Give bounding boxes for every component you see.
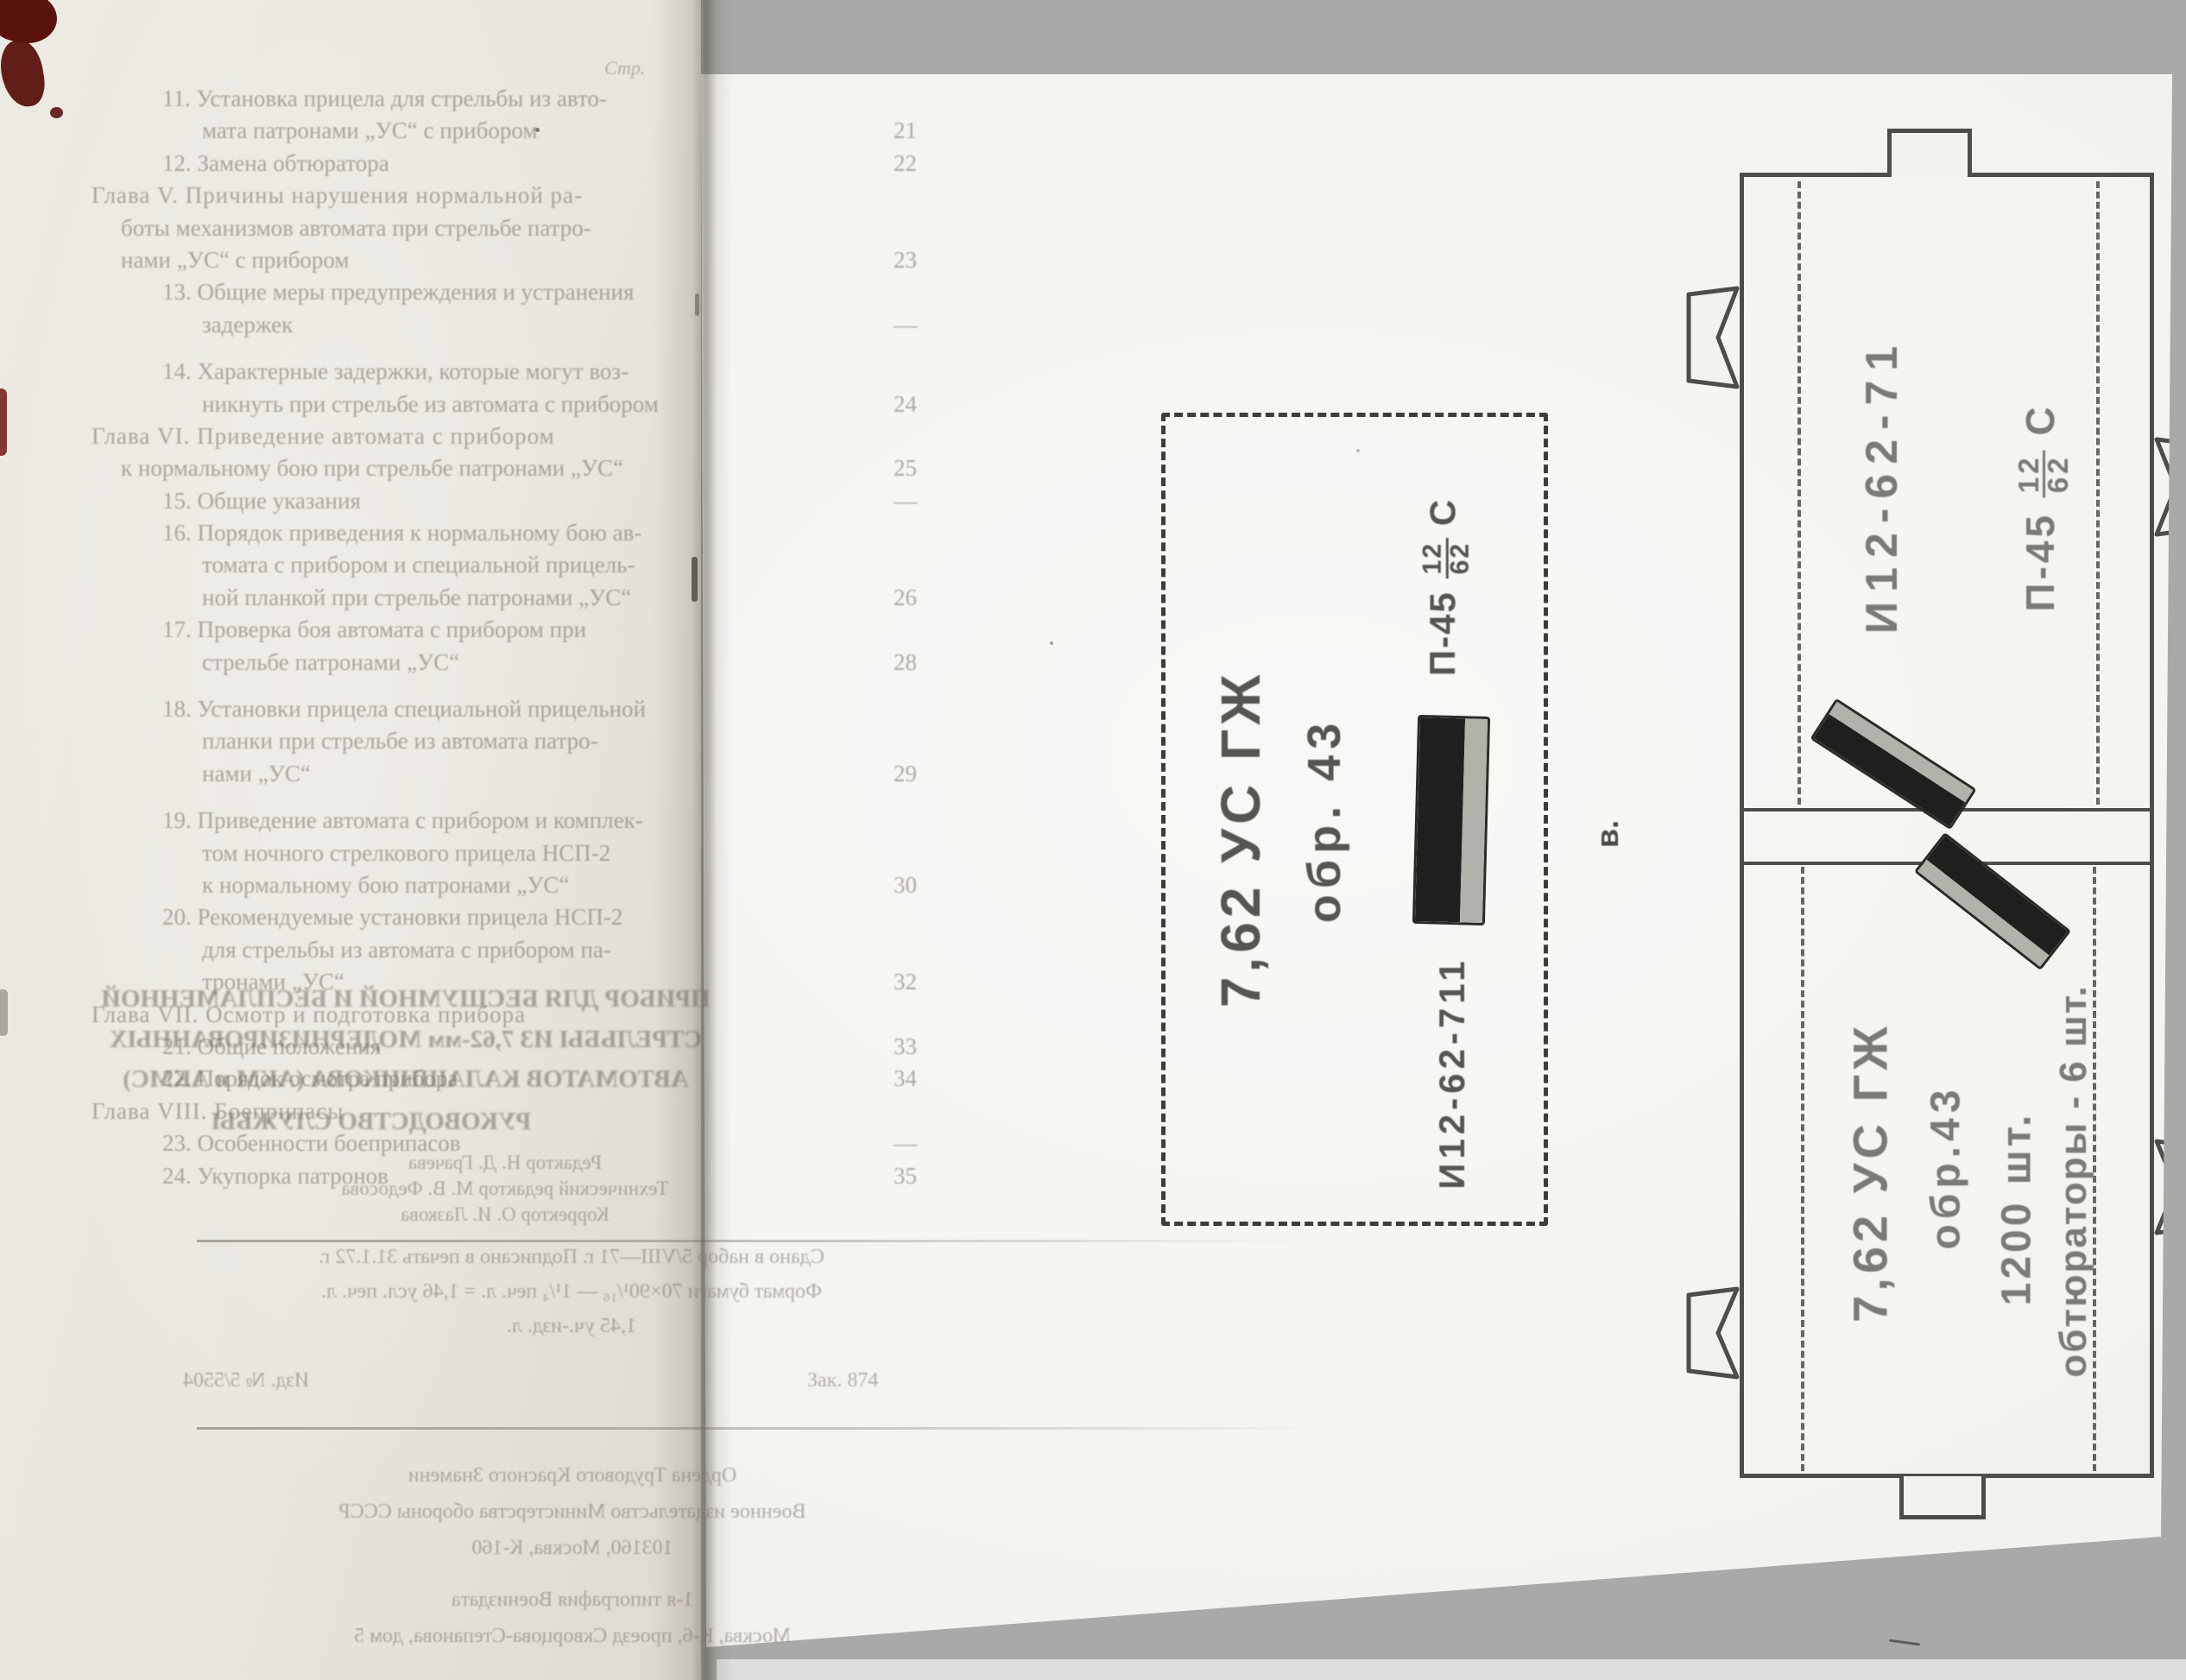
toc-page-number: 32 [856,966,917,998]
publisher-line: Ордена Трудового Красного Знамени [338,1457,806,1494]
showthrough-title-line: АВТОМАТОВ КАЛАШНИКОВА (АКМ и АКМС) [123,1065,689,1094]
crate-caliber-text: 7,62 УС ГЖ [1842,1022,1899,1323]
crate-count-text: 1200 шт. [1993,1112,2041,1306]
red-stain [0,388,7,456]
powder-suffix: С [1422,498,1463,526]
crate-cleat [1682,1285,1742,1381]
toc-page-number: — [856,485,917,517]
publisher-block: Ордена Трудового Красного Знамени Военно… [338,1457,806,1654]
editor-line: Корректор О. И. Лазкова [341,1202,668,1228]
toc-line-text: Глава VI. Приведение автомата с прибором [92,423,555,449]
toc-page-number: 34 [856,1063,917,1095]
speck [1356,449,1360,452]
edition-number: Изд. № 5/5504 [183,1369,309,1393]
toc-line: боты механизмов автомата при стрельбе па… [86,212,917,244]
crate-lot-text: И12-62-71 [1856,337,1908,635]
showthrough-title-line: СТРЕЛЬБЫ ИЗ 7,62-мм МОДЕРНИЗИРОВАННЫХ [110,1026,702,1054]
imprint-line: 1,45 уч.-изд. л. [319,1309,824,1343]
editor-line: Редактор Н. Д. Грачева [341,1150,668,1176]
toc-line: для стрельбы из автомата с прибором па- [86,934,917,966]
showthrough-title-line: ПРИБОР ДЛЯ БЕСШУМНОЙ И БЕСПЛАМЕННОЙ [101,985,710,1014]
toc-page-column-header: Стр. [604,57,645,79]
crate-cleat [1682,283,1742,392]
publisher-line: 103160, Москва, К-160 [338,1530,806,1566]
toc-line-text: к нормальному бою патронами „УС“ [202,872,569,898]
label-caliber-text: 7,62 УС ГЖ [1209,671,1273,1007]
toc-line-text: 14. Характерные задержки, которые могут … [162,358,629,384]
toc-line: стрельбе патронами „УС“ 28 [86,647,917,679]
toc-line: 19. Приведение автомата с прибором и ком… [86,805,917,837]
editor-line: Технический редактор М. В. Федосова [341,1176,668,1202]
toc-line: никнуть при стрельбе из автомата с прибо… [86,388,917,420]
toc-line-text: ной планкой при стрельбе патронами „УС“ [202,584,631,610]
toc-line: 12. Замена обтюратора 22 [86,148,917,180]
band-black-part [1415,717,1465,922]
powder-denominator: 62 [1449,538,1474,579]
crate-dashed-edge [1797,181,1801,805]
imprint-block: Сдано в набор 5/VIII—71 г. Подписано в п… [319,1240,824,1343]
toc-page-number: 33 [856,1031,917,1063]
crate-cleat [2151,434,2186,540]
toc-line: Глава VI. Приведение автомата с прибором [86,420,917,452]
toc-line: Глава V. Причины нарушения нормальной ра… [86,180,917,212]
toc-line: к нормальному бою патронами „УС“ 30 [86,869,917,901]
powder-prefix: П-45 [1422,591,1463,676]
figure-letter: в. [1589,820,1626,848]
toc-line-text: никнуть при стрельбе из автомата с прибо… [202,391,659,417]
powder-fraction: 1262 [2016,450,2073,497]
toc-line: нами „УС“ с прибором 23 [86,244,917,276]
toc-line-text: 17. Проверка боя автомата с прибором при [162,616,586,642]
toc-page-number: — [856,309,917,341]
toc-page-number: 28 [856,647,917,679]
colophon-rule [197,1427,1328,1430]
toc-line-text: мата патронами „УС“ с прибором [202,117,537,143]
toc-line: 17. Проверка боя автомата с прибором при [86,614,917,646]
toc-line-text: планки при стрельбе из автомата патро- [202,728,598,754]
crate-tab [1887,129,1972,177]
toc-page-number: 21 [856,115,917,147]
red-stain [50,107,63,118]
toc-line: к нормальному бою при стрельбе патронами… [86,452,917,484]
speck [1050,641,1053,645]
toc-line-text: 16. Порядок приведения к нормальному бою… [162,520,641,546]
toc-page-number: 26 [856,582,917,614]
toc-line: 15. Общие указания — [86,485,917,517]
toc-line-text: томата с прибором и специальной прицель- [202,552,635,578]
paper-scratch [1889,1639,1920,1646]
toc-page-number: 22 [856,148,917,180]
showthrough-title-line: РУКОВОДСТВО СЛУЖБЫ [212,1108,531,1136]
toc-line-text: 12. Замена обтюратора [162,150,389,176]
toc-line-text: 20. Рекомендуемые установки прицела НСП-… [162,904,622,930]
publisher-line: Военное издательство Министерства оборон… [338,1494,806,1530]
toc-page-number: 30 [856,869,917,901]
crate-model-text: обр.43 [1923,1084,1970,1249]
scanner-bed-strip [717,1659,2186,1680]
powder-numerator: 12 [2016,450,2045,497]
toc-line-text: 15. Общие указания [162,488,361,514]
toc-line: 20. Рекомендуемые установки прицела НСП-… [86,901,917,933]
toc-line-text: 11. Установка прицела для стрельбы из ав… [162,85,607,111]
crate-powder-text: П-45 1262 С [2016,403,2073,611]
toc-line: 13. Общие меры предупреждения и устранен… [86,276,917,308]
toc-line-text: Глава V. Причины нарушения нормальной ра… [92,182,583,208]
toc-page-number: 24 [856,388,917,420]
crate-tab [1899,1476,1986,1519]
toc-line: 18. Установки прицела специальной прицел… [86,693,917,725]
label-model-text: обр. 43 [1298,717,1351,923]
toc-line-text: 19. Приведение автомата с прибором и ком… [162,807,643,833]
scanned-book-spread: в. 7,62 УС ГЖ обр. 43 И12-62-711 П-45 12… [0,0,2186,1680]
powder-numerator: 12 [1421,538,1449,579]
publisher-line: 1-я типография Воениздата [338,1582,806,1618]
toc-line-text: для стрельбы из автомата с прибором па- [202,937,611,963]
toc-page-number: 29 [856,758,917,790]
toc-line-text: задержек [202,312,293,338]
toc-line: томата с прибором и специальной прицель- [86,549,917,581]
crate-obturators-text: обтюраторы - 6 шт. [2052,984,2095,1377]
toc-line-text: к нормальному бою при стрельбе патронами… [121,455,623,481]
powder-fraction: 1262 [1421,538,1473,579]
powder-denominator: 62 [2046,450,2073,497]
crate-dashed-edge [1801,867,1804,1471]
toc-page-number: — [856,1127,917,1159]
toc-line: нами „УС“ 29 [86,758,917,790]
toc-line-text: 18. Установки прицела специальной прицел… [162,696,646,722]
toc-line-text: нами „УС“ [202,761,311,786]
editors-block: Редактор Н. Д. Грачева Технический редак… [341,1150,668,1228]
toc-page-number: 23 [856,244,917,276]
toc-line-text: 13. Общие меры предупреждения и устранен… [162,279,634,305]
crate-cleat [2151,1136,2186,1238]
order-number: Зак. 874 [807,1369,878,1393]
imprint-line: Формат бумаги 70×90¹/₁₆ — 1¹/₄ печ. л. =… [319,1274,824,1309]
toc-line: том ночного стрелкового прицела НСП-2 [86,837,917,869]
toc-line: планки при стрельбе из автомата патро- [86,725,917,757]
color-band [1412,715,1490,925]
toc-line: 16. Порядок приведения к нормальному бою… [86,517,917,549]
toc-line-text: стрельбе патронами „УС“ [202,649,459,675]
toc-line: 14. Характерные задержки, которые могут … [86,356,917,388]
toc-page-number: 35 [856,1160,917,1192]
band-stripe-part [1460,718,1488,923]
toc-line-text: том ночного стрелкового прицела НСП-2 [202,840,610,866]
toc-line: задержек — [86,309,917,341]
toc-line-text: боты механизмов автомата при стрельбе па… [121,215,591,241]
toc-line-text: нами „УС“ с прибором [121,247,350,273]
powder-suffix: С [2018,403,2063,435]
toc-line: мата патронами „УС“ с прибором 21 [86,115,917,147]
toc-page-number: 25 [856,452,917,484]
crate-dashed-edge [2096,181,2100,805]
label-powder-text: П-45 1262 С [1421,498,1473,676]
imprint-line: Сдано в набор 5/VIII—71 г. Подписано в п… [319,1240,824,1274]
powder-prefix: П-45 [2018,512,2063,612]
toc-line: ной планкой при стрельбе патронами „УС“ … [86,582,917,614]
pencil-mark [0,989,8,1036]
publisher-line: Москва, К-6, проезд Скворцова-Степанова,… [338,1618,806,1654]
toc-line: 11. Установка прицела для стрельбы из ав… [86,83,917,115]
label-lot-text: И12-62-711 [1431,957,1473,1189]
speck [535,128,540,132]
